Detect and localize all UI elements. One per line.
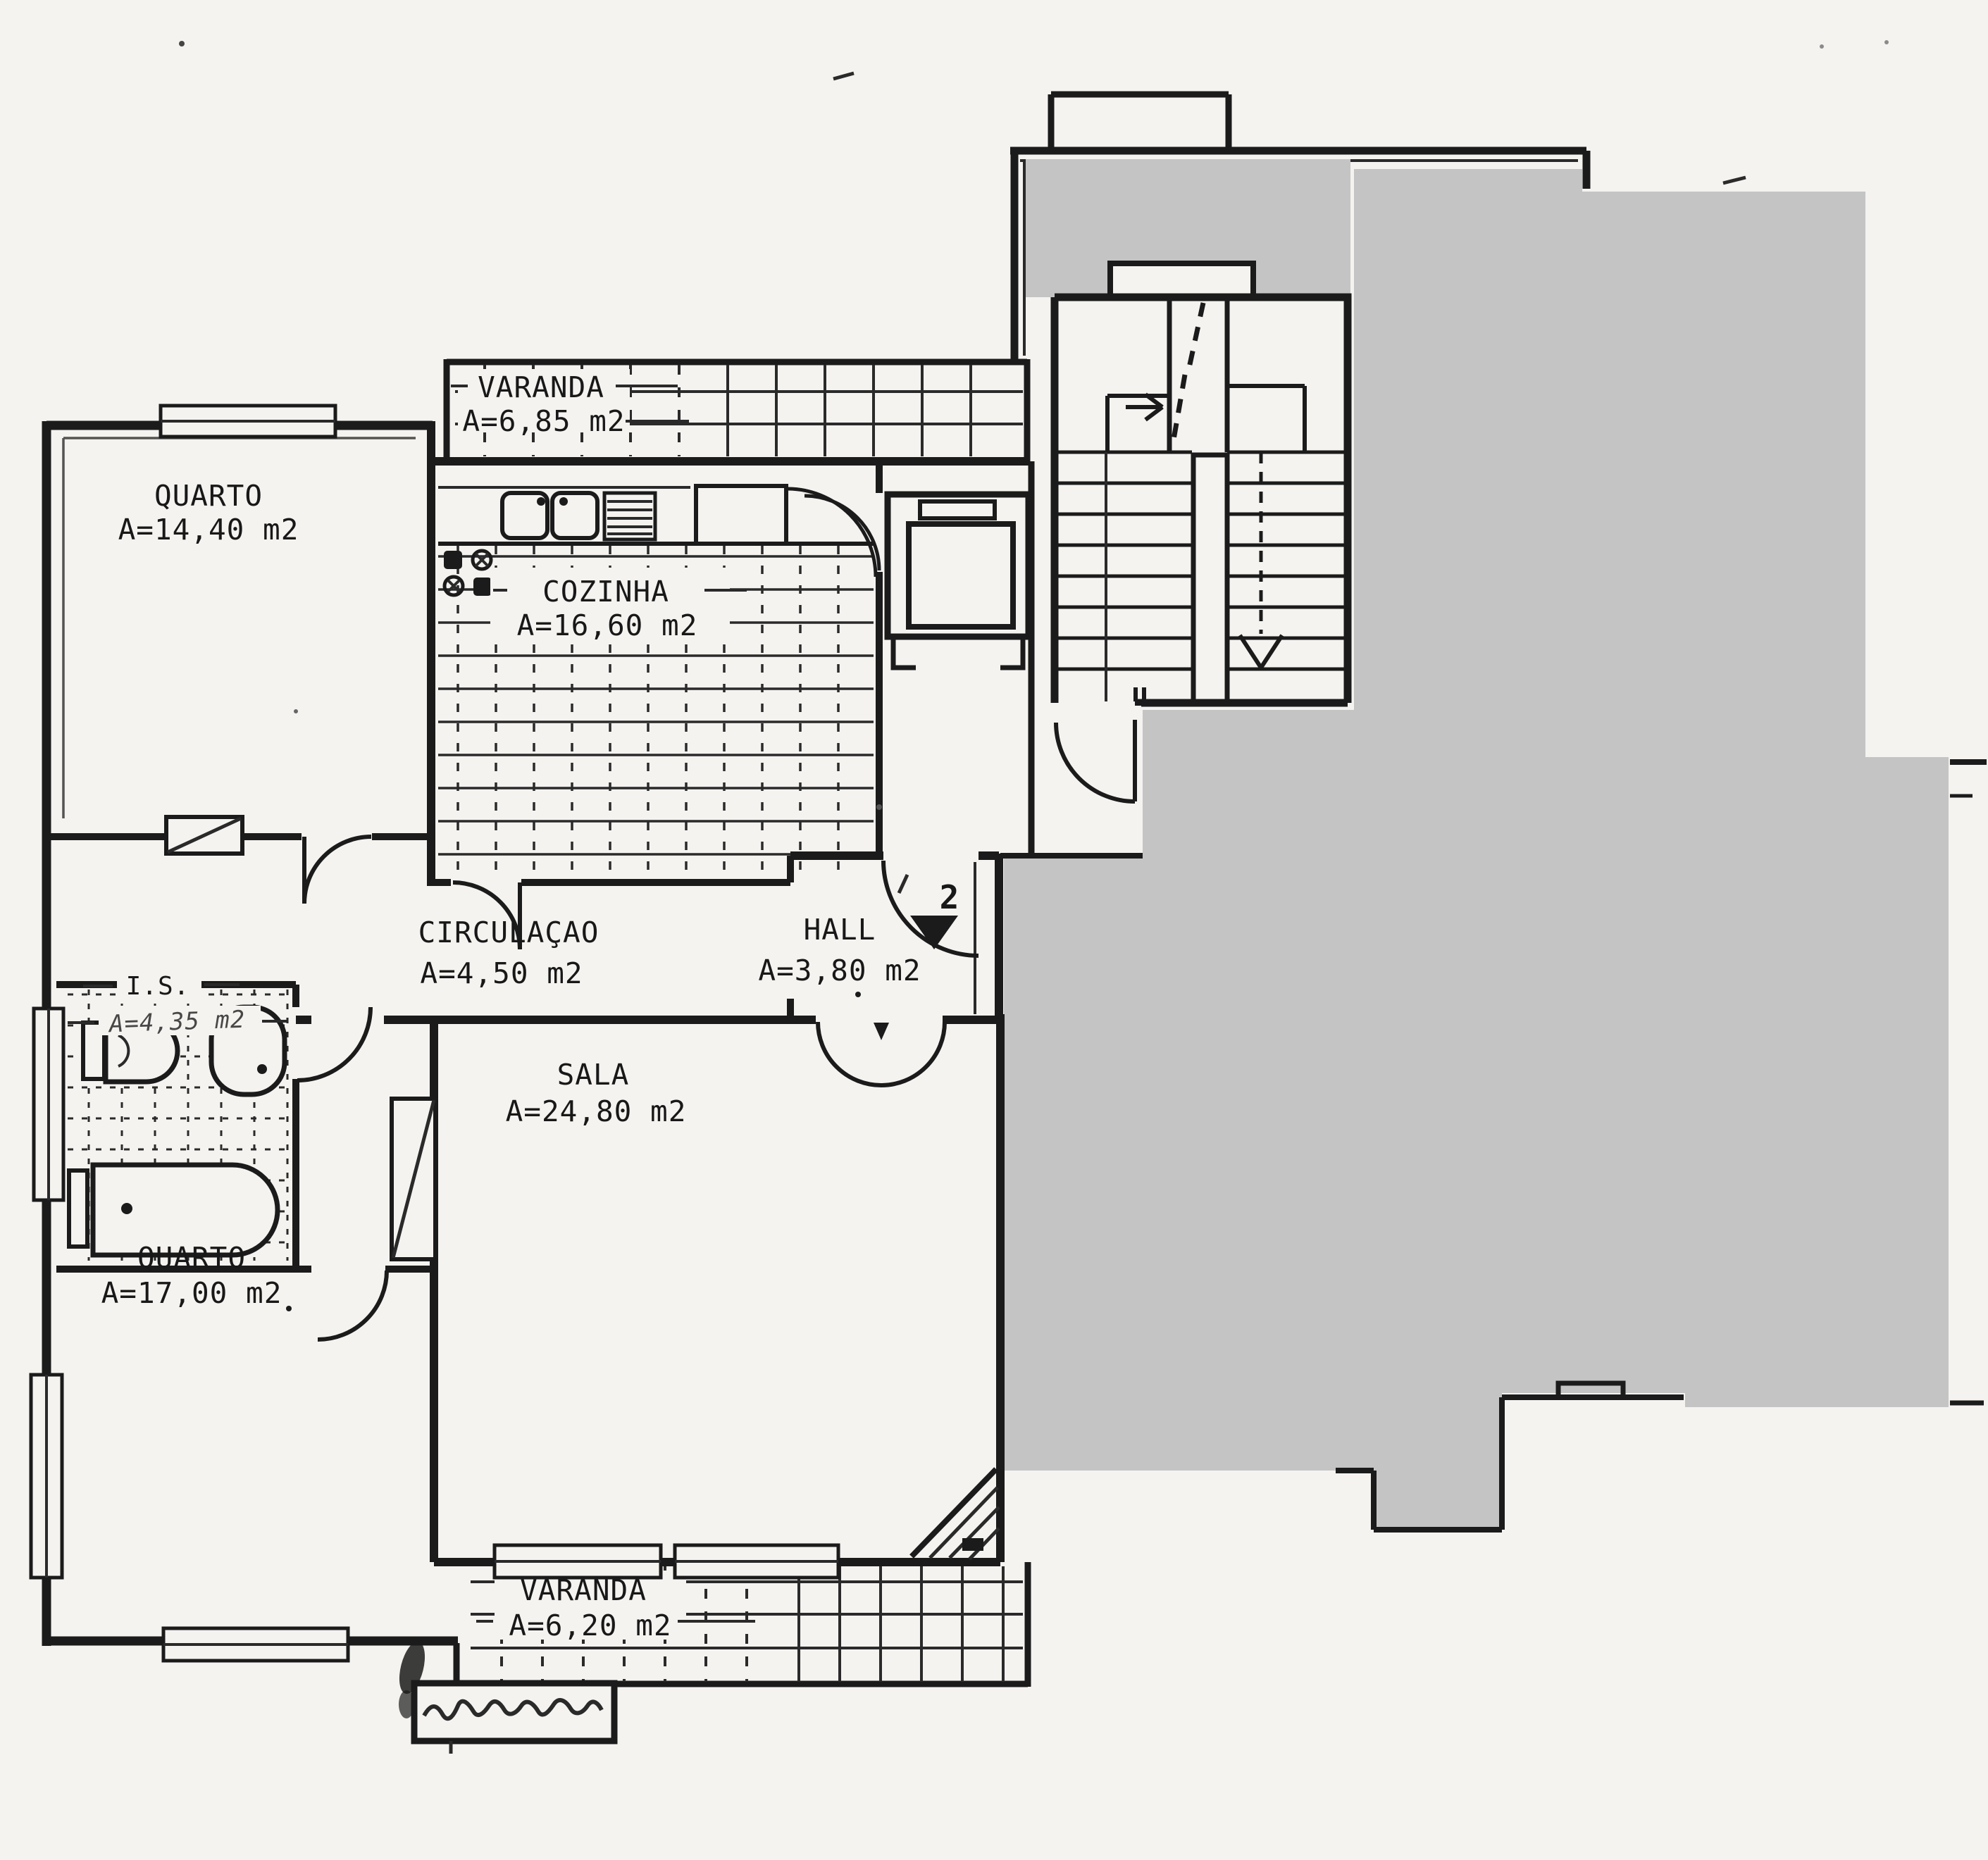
signature-box — [395, 1639, 614, 1754]
room-area-cozinha: A=16,60 m2 — [517, 608, 698, 642]
room-label-sala: SALA — [557, 1058, 630, 1092]
room-area-quarto-bottom: A=17,00 m2 — [101, 1276, 282, 1310]
room-label-quarto-top: QUARTO — [154, 479, 263, 513]
kitchen-door-leaf — [696, 486, 786, 544]
is-bathroom: I.S. A=4,35 m2 — [56, 970, 434, 1269]
wardrobe — [392, 1099, 435, 1259]
window-sala-1 — [495, 1545, 661, 1578]
room-label-varanda-top: VARANDA — [478, 370, 604, 404]
window-quarto-top — [161, 406, 335, 437]
floorplan-page: VARANDA A=6,85 m2 — [0, 0, 1988, 1860]
sink-right — [552, 493, 597, 538]
room-label-cozinha: COZINHA — [542, 575, 669, 608]
room-area-circulacao: A=4,50 m2 — [420, 956, 583, 990]
floorplan-svg: VARANDA A=6,85 m2 — [0, 0, 1988, 1860]
fireplace — [912, 1469, 999, 1559]
window-sala-2 — [675, 1545, 838, 1578]
room-area-quarto-top: A=14,40 m2 — [118, 513, 299, 547]
room-label-hall: HALL — [804, 913, 876, 947]
window-quarto-bottom-left — [31, 1375, 62, 1578]
room-area-sala: A=24,80 m2 — [506, 1094, 687, 1128]
drainer-hatch — [604, 493, 655, 539]
quarto-bottom-door-arc — [318, 1271, 387, 1340]
hall: 2 HALL A=3,80 m2 — [758, 856, 999, 997]
room-area-varanda-bottom: A=6,20 m2 — [509, 1609, 671, 1642]
room-area-hall: A=3,80 m2 — [758, 954, 921, 987]
room-area-is: A=4,35 m2 — [107, 1006, 246, 1039]
room-area-varanda-top: A=6,85 m2 — [462, 404, 625, 438]
entrance-unit-number: 2 — [940, 878, 960, 916]
room-label-circulacao: CIRCULAÇAO — [418, 916, 599, 949]
room-label-is: I.S. — [126, 972, 190, 1001]
kitchen-counter — [437, 466, 876, 577]
room-label-quarto-bottom: QUARTO — [137, 1241, 246, 1275]
quarto-top: QUARTO A=14,40 m2 — [46, 479, 431, 904]
stairwell — [1055, 263, 1348, 703]
cozinha: COZINHA A=16,60 m2 — [427, 421, 1030, 886]
elevator — [888, 494, 1029, 668]
sala-double-door — [818, 1022, 945, 1085]
window-quarto-bottom — [163, 1628, 348, 1661]
quarto-top-door-arc — [304, 837, 371, 904]
sala: SALA A=24,80 m2 — [434, 1020, 999, 1562]
varanda-bottom: VARANDA A=6,20 m2 — [456, 1562, 1028, 1687]
wardrobe — [166, 817, 242, 854]
varanda-top: VARANDA A=6,85 m2 — [447, 359, 1027, 461]
window-bathroom-left — [34, 1009, 63, 1200]
